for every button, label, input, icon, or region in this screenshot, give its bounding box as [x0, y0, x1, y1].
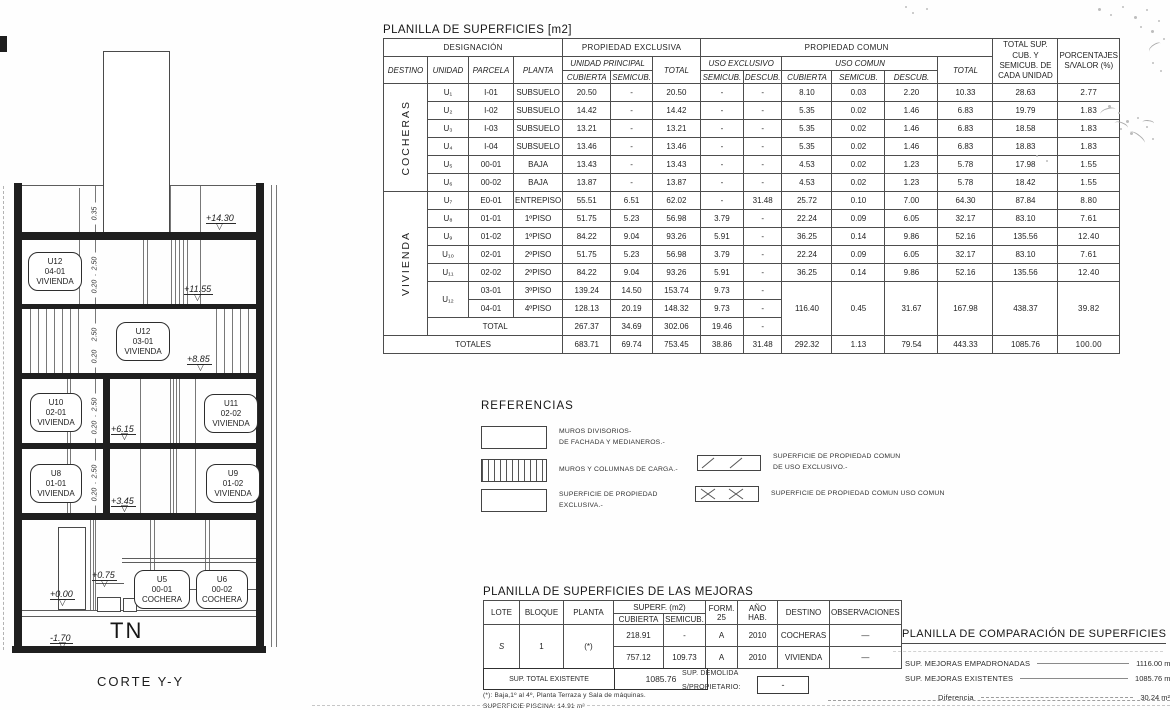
table-row: U₂I-02SUBSUELO14.42-14.42--5.350.021.466… [384, 102, 1120, 120]
scan-speck [1152, 138, 1154, 140]
drawing-line [195, 379, 196, 443]
table-row: U₃I-03SUBSUELO13.21-13.21--5.350.021.466… [384, 120, 1120, 138]
unit-label-line: COCHERA [142, 595, 182, 605]
value-cell: 12.40 [1058, 264, 1120, 282]
header-subcolumn: SEMICUB. [611, 71, 653, 84]
value-cell: 10.33 [938, 84, 993, 102]
legend-item: SUPERFICIE DE PROPIEDAD COMUNDE USO EXCL… [697, 452, 900, 473]
header-subcolumn: SEMICUB. [700, 71, 743, 84]
legend-label-line: EXCLUSIVA.- [559, 501, 658, 512]
unit-label-line: 01-01 [46, 479, 66, 489]
total-value-cell: 267.37 [563, 318, 611, 336]
unit-label-box: U1204-01VIVIENDA [28, 252, 82, 291]
observaciones-cell: — [830, 647, 902, 669]
comparacion-title: PLANILLA DE COMPARACIÓN DE SUPERFICIES [902, 628, 1166, 644]
header-lote: LOTE [484, 601, 520, 625]
value-cell: 32.17 [938, 246, 993, 264]
drawing-line [176, 379, 177, 443]
header-parcela: PARCELA [469, 57, 514, 84]
value-cell: U₈ [428, 210, 469, 228]
value-cell: 83.10 [993, 246, 1058, 264]
scan-speck [1036, 155, 1038, 157]
totales-value-cell: 69.74 [611, 336, 653, 354]
value-cell: U₃ [428, 120, 469, 138]
value-cell: 4ºPISO [514, 300, 563, 318]
value-cell: 0.02 [832, 156, 885, 174]
lote-cell: S [484, 625, 520, 669]
value-cell: 52.16 [938, 264, 993, 282]
value-cell: 20.19 [611, 300, 653, 318]
scan-speck [1140, 26, 1142, 28]
unit-label-box: U600-02COCHERA [196, 570, 248, 609]
drawing-outline [97, 597, 121, 612]
value-cell: 51.75 [563, 246, 611, 264]
header-total: TOTAL [652, 57, 700, 84]
unit-label-line: COCHERA [202, 595, 242, 605]
scan-speck [1160, 70, 1162, 72]
drawing-line [46, 309, 47, 373]
scan-dashed-line [893, 651, 1163, 652]
drawing-line [205, 520, 206, 573]
value-cell: 5.23 [611, 210, 653, 228]
legend-item: SUPERFICIE DE PROPIEDADEXCLUSIVA.- [481, 489, 658, 512]
referencias-title: REFERENCIAS [481, 400, 574, 412]
semicub-cell: 109.73 [664, 647, 706, 669]
header-porcentajes: PORCENTAJES S/VALOR (%) [1058, 39, 1120, 84]
value-cell: U₇ [428, 192, 469, 210]
value-cell: I-03 [469, 120, 514, 138]
value-cell: 87.84 [993, 192, 1058, 210]
value-cell: 22.24 [782, 246, 832, 264]
leader-line [1037, 663, 1129, 664]
value-cell: 1.83 [1058, 120, 1120, 138]
legend-label-line: MUROS Y COLUMNAS DE CARGA.- [559, 465, 678, 476]
drawing-line [240, 309, 241, 373]
legend-label: MUROS DIVISORIOS-DE FACHADA Y MEDIANEROS… [559, 427, 665, 448]
value-cell: - [743, 264, 782, 282]
unit-label-line: U12 [48, 257, 63, 267]
dimension-label: 0.20 [92, 276, 99, 298]
totales-value-cell: 38.86 [700, 336, 743, 354]
value-cell: - [743, 174, 782, 192]
value-cell: 17.98 [993, 156, 1058, 174]
value-cell: E0-01 [469, 192, 514, 210]
drawing-line [78, 309, 79, 373]
drawing-line [140, 449, 141, 513]
header-cubierta: CUBIERTA [614, 614, 664, 625]
drawing-line [16, 610, 264, 611]
level-marker-icon: ▽ [59, 598, 66, 607]
header-bloque: BLOQUE [520, 601, 564, 625]
value-cell: 22.24 [782, 210, 832, 228]
drawing-line [93, 520, 94, 610]
header-total-sup: TOTAL SUP. CUB. Y SEMICUB. DE CADA UNIDA… [993, 39, 1058, 84]
unit-label-line: U8 [51, 469, 61, 479]
value-cell: - [743, 120, 782, 138]
value-cell: 0.02 [832, 174, 885, 192]
terrain-label: TN [110, 618, 143, 644]
value-cell: 1ºPISO [514, 210, 563, 228]
value-cell: 6.83 [938, 102, 993, 120]
value-cell: SUBSUELO [514, 84, 563, 102]
value-cell: - [700, 174, 743, 192]
value-cell: 36.25 [782, 264, 832, 282]
scan-speck [1046, 160, 1048, 162]
value-cell: 1.83 [1058, 138, 1120, 156]
header-planta: PLANTA [564, 601, 614, 625]
value-cell: 25.72 [782, 192, 832, 210]
merged-value-cell: 31.67 [885, 282, 938, 336]
table-row: U₈01-011ºPISO51.755.2356.983.79-22.240.0… [384, 210, 1120, 228]
observaciones-cell: — [830, 625, 902, 647]
header-semicub: SEMICUB. [664, 614, 706, 625]
value-cell: 56.98 [652, 246, 700, 264]
total-value-cell: 302.06 [652, 318, 700, 336]
value-cell: 00-02 [469, 174, 514, 192]
totales-value-cell: 1085.76 [993, 336, 1058, 354]
ano-cell: 2010 [738, 647, 778, 669]
merged-value-cell: 39.82 [1058, 282, 1120, 336]
value-cell: 0.14 [832, 264, 885, 282]
value-cell: U₆ [428, 174, 469, 192]
value-cell: 5.35 [782, 138, 832, 156]
value-cell: 13.21 [652, 120, 700, 138]
level-marker-icon: ▽ [59, 641, 66, 650]
value-cell: 6.05 [885, 210, 938, 228]
unit-label-line: VIVIENDA [37, 418, 74, 428]
value-cell: U₁₁ [428, 264, 469, 282]
value-cell: 62.02 [652, 192, 700, 210]
scan-speck [1137, 117, 1139, 119]
level-marker-icon: ▽ [216, 222, 223, 231]
value-cell: SUBSUELO [514, 138, 563, 156]
value-cell: - [700, 102, 743, 120]
header-form25: FORM. 25 [706, 601, 738, 625]
value-cell: 28.63 [993, 84, 1058, 102]
scan-speck [1146, 9, 1148, 11]
dimension-label: 0.20 [92, 484, 99, 506]
dimension-label: 2.50 [92, 461, 99, 483]
propietario-value-box: - [757, 676, 809, 694]
totales-value-cell: 443.33 [938, 336, 993, 354]
dimension-label: 2.50 [92, 394, 99, 416]
value-cell: 83.10 [993, 210, 1058, 228]
value-cell: 13.43 [563, 156, 611, 174]
value-cell: 9.04 [611, 228, 653, 246]
value-cell: 3ºPISO [514, 282, 563, 300]
value-cell: 135.56 [993, 264, 1058, 282]
propietario-label: S/PROPIETARIO: [682, 684, 741, 691]
header-observaciones: OBSERVACIONES [830, 601, 902, 625]
drawing-line [62, 309, 63, 373]
mejoras-footer: SUP. TOTAL EXISTENTE1085.76 [483, 668, 708, 690]
drawing-line [248, 309, 249, 373]
drawing-line [216, 309, 217, 373]
value-cell: 04-01 [469, 300, 514, 318]
scan-speck [1134, 16, 1137, 19]
drawing-line [276, 185, 277, 647]
value-cell: - [743, 102, 782, 120]
value-cell: U₁₀ [428, 246, 469, 264]
value-cell: 0.02 [832, 120, 885, 138]
table-row: U₁₁02-022ºPISO84.229.0493.265.91-36.250.… [384, 264, 1120, 282]
value-cell: 64.30 [938, 192, 993, 210]
header-planta: PLANTA [514, 57, 563, 84]
drawing-outline [103, 51, 170, 234]
unit-label-line: U11 [224, 399, 238, 409]
header-uso-exclusivo: USO EXCLUSIVO [700, 57, 782, 71]
scan-speck [1110, 14, 1112, 16]
dimension-label: 0.35 [92, 203, 99, 225]
scan-speck [912, 12, 914, 14]
drawing-line [173, 379, 174, 443]
value-cell: I-01 [469, 84, 514, 102]
value-cell: 20.50 [652, 84, 700, 102]
drawing-line [195, 449, 196, 513]
value-cell: 0.02 [832, 102, 885, 120]
value-cell: 18.58 [993, 120, 1058, 138]
value-cell: 128.13 [563, 300, 611, 318]
value-cell: 84.22 [563, 228, 611, 246]
total-value-cell: - [743, 318, 782, 336]
table-row: U₁₂03-013ºPISO139.2414.50153.749.73-116.… [384, 282, 1120, 300]
totales-value-cell: 79.54 [885, 336, 938, 354]
scan-speck [1126, 120, 1129, 123]
header-unidad-principal: UNIDAD PRINCIPAL [563, 57, 653, 71]
drawing-line [54, 309, 55, 373]
drawing-line [209, 520, 210, 573]
plain-swatch [481, 489, 547, 512]
semicub-cell: - [664, 625, 706, 647]
value-cell: 13.46 [563, 138, 611, 156]
wall-slab [103, 379, 110, 513]
header-subcolumn: CUBIERTA [563, 71, 611, 84]
destino-vertical-label: VIVIENDA [400, 231, 412, 296]
destino-cell: COCHERAS [384, 84, 428, 192]
unit-label-line: VIVIENDA [36, 277, 73, 287]
value-cell: 13.43 [652, 156, 700, 174]
unit-label-line: 00-01 [152, 585, 172, 595]
mejoras-body: S1(*)218.91-A2010COCHERAS—757.12109.73A2… [484, 625, 902, 669]
value-cell: 00-01 [469, 156, 514, 174]
dimension-label: 0.20 [92, 346, 99, 368]
value-cell: 03-01 [469, 282, 514, 300]
header-propiedad-comun: PROPIEDAD COMUN [700, 39, 993, 57]
table-row: TOTALES683.7169.74753.4538.8631.48292.32… [384, 336, 1120, 354]
value-cell: 02-02 [469, 264, 514, 282]
drawing-line [122, 562, 258, 563]
leader-line [981, 697, 1134, 698]
wall-slab [14, 232, 264, 240]
value-cell: SUBSUELO [514, 120, 563, 138]
value-cell: - [700, 84, 743, 102]
value-cell: - [611, 138, 653, 156]
unit-label-line: U6 [217, 575, 227, 585]
value-cell: - [700, 120, 743, 138]
header-row: DESIGNACIÓNPROPIEDAD EXCLUSIVAPROPIEDAD … [384, 39, 1120, 57]
drawing-line [90, 520, 91, 610]
value-cell: - [743, 84, 782, 102]
drawing-line [271, 185, 272, 647]
value-cell: 13.87 [652, 174, 700, 192]
value-cell: 3.79 [700, 210, 743, 228]
section-drawing-corte: TN CORTE Y-Y +14.30▽+11.55▽+8.85▽+6.15▽+… [0, 0, 382, 710]
value-cell: 139.24 [563, 282, 611, 300]
value-cell: - [743, 156, 782, 174]
value-cell: U₂ [428, 102, 469, 120]
value-cell: 5.91 [700, 228, 743, 246]
totales-value-cell: 683.71 [563, 336, 611, 354]
unit-label-line: VIVIENDA [124, 347, 161, 357]
value-cell: - [743, 300, 782, 318]
unit-label-line: VIVIENDA [212, 419, 249, 429]
value-cell: 6.83 [938, 138, 993, 156]
wall-slab [14, 304, 264, 309]
comparacion-row: SUP. MEJORAS EXISTENTES1085.76 m² [905, 674, 1170, 683]
value-cell: 01-02 [469, 228, 514, 246]
drawing-line [224, 309, 225, 373]
drawing-line [170, 449, 171, 513]
propietario-value: - [782, 680, 785, 690]
drawing-caption: CORTE Y-Y [97, 674, 184, 689]
value-cell: 32.17 [938, 210, 993, 228]
table-row: U₅00-01BAJA13.43-13.43--4.530.021.235.78… [384, 156, 1120, 174]
value-cell: I-04 [469, 138, 514, 156]
legend-label-line: MUROS DIVISORIOS- [559, 427, 665, 438]
drawing-line [179, 240, 180, 304]
value-cell: BAJA [514, 156, 563, 174]
wall-slab [14, 513, 264, 520]
value-cell: 135.56 [993, 228, 1058, 246]
cubierta-cell: 757.12 [614, 647, 664, 669]
level-marker-icon: ▽ [197, 363, 204, 372]
value-cell: 1ºPISO [514, 228, 563, 246]
dimension-label: 2.50 [92, 253, 99, 275]
value-cell: 12.40 [1058, 228, 1120, 246]
scan-squiggle [1142, 119, 1155, 127]
legend-item: MUROS DIVISORIOS-DE FACHADA Y MEDIANEROS… [481, 426, 665, 449]
value-cell: 0.03 [832, 84, 885, 102]
legend-item: MUROS Y COLUMNAS DE CARGA.- [481, 459, 678, 482]
value-cell: 9.86 [885, 264, 938, 282]
value-cell: 93.26 [652, 228, 700, 246]
drawing-line [143, 240, 144, 304]
drawing-line [30, 309, 31, 373]
value-cell: 55.51 [563, 192, 611, 210]
wall-slab [14, 373, 264, 379]
unit-label-box: U500-01COCHERA [134, 570, 190, 609]
wall-slab [0, 36, 7, 52]
value-cell: 13.46 [652, 138, 700, 156]
merged-value-cell: 116.40 [782, 282, 832, 336]
scan-speck [1163, 38, 1165, 40]
scan-speck [1118, 112, 1120, 114]
header-unidad: UNIDAD [428, 57, 469, 84]
legend-label-line: SUPERFICIE DE PROPIEDAD COMUN [773, 452, 900, 463]
scan-speck [926, 8, 928, 10]
legend-label-line: SUPERFICIE DE PROPIEDAD COMUN USO COMUN [771, 489, 945, 500]
value-cell: 1.55 [1058, 174, 1120, 192]
table-row: COCHERASU₁I-01SUBSUELO20.50-20.50--8.100… [384, 84, 1120, 102]
merged-value-cell: 0.45 [832, 282, 885, 336]
unit-label-line: VIVIENDA [37, 489, 74, 499]
value-cell: 1.46 [885, 102, 938, 120]
value-cell: 7.00 [885, 192, 938, 210]
value-cell: U₅ [428, 156, 469, 174]
planta-cell: (*) [564, 625, 614, 669]
value-cell: 9.86 [885, 228, 938, 246]
legend-item: SUPERFICIE DE PROPIEDAD COMUN USO COMUN [695, 486, 945, 502]
header-total: TOTAL [938, 57, 993, 84]
header-propiedad-exclusiva: PROPIEDAD EXCLUSIVA [563, 39, 701, 57]
legend-label-line: DE FACHADA Y MEDIANEROS.- [559, 438, 665, 449]
dimension-label: 2.50 [92, 324, 99, 346]
value-cell: 18.42 [993, 174, 1058, 192]
wall-slab [14, 443, 264, 449]
legend-label-line: SUPERFICIE DE PROPIEDAD [559, 490, 658, 501]
value-cell: 02-01 [469, 246, 514, 264]
value-cell: - [700, 156, 743, 174]
value-cell: 36.25 [782, 228, 832, 246]
value-cell: 6.83 [938, 120, 993, 138]
value-cell: - [743, 282, 782, 300]
header-row: LOTEBLOQUEPLANTASUPERF. (m2)FORM. 25AÑO … [484, 601, 902, 614]
value-cell: 7.61 [1058, 210, 1120, 228]
scan-speck [1146, 126, 1148, 128]
unit-label-line: 04-01 [45, 267, 65, 277]
total-value-cell: 19.46 [700, 318, 743, 336]
drawing-line [175, 240, 176, 304]
value-cell: - [611, 102, 653, 120]
total-value-cell: 34.69 [611, 318, 653, 336]
table-row: U₉01-021ºPISO84.229.0493.265.91-36.250.1… [384, 228, 1120, 246]
main-table-body: COCHERASU₁I-01SUBSUELO20.50-20.50--8.100… [384, 84, 1120, 354]
header-ano-hab: AÑO HAB. [738, 601, 778, 625]
plain-swatch [481, 426, 547, 449]
drawing-line [173, 449, 174, 513]
value-cell: 13.21 [563, 120, 611, 138]
unit-label-box: U1102-02VIVIENDA [204, 394, 258, 433]
value-cell: BAJA [514, 174, 563, 192]
legend-label-line: DE USO EXCLUSIVO.- [773, 463, 900, 474]
value-cell: U₄ [428, 138, 469, 156]
value-cell: 9.73 [700, 282, 743, 300]
mejoras-title: PLANILLA DE SUPERFICIES DE LAS MEJORAS [483, 586, 753, 598]
value-cell: 1.46 [885, 120, 938, 138]
mejoras-total-label-cell: SUP. TOTAL EXISTENTE [483, 668, 615, 690]
comparacion-value: 1085.76 m² [1135, 674, 1170, 683]
unit-label-line: 03-01 [133, 337, 153, 347]
unit-label-line: 01-02 [223, 479, 243, 489]
table-row: U₄I-04SUBSUELO13.46-13.46--5.350.021.466… [384, 138, 1120, 156]
header-superf: SUPERF. (m2) [614, 601, 706, 614]
unit-label-line: U9 [228, 469, 238, 479]
value-cell: 4.53 [782, 156, 832, 174]
header-uso-comun: USO COMUN [782, 57, 938, 71]
comparacion-label: SUP. MEJORAS EMPADRONADAS [905, 659, 1030, 668]
header-subcolumn: CUBIERTA [782, 71, 832, 84]
destino-cell: VIVIENDA [778, 647, 830, 669]
comparacion-row: SUP. MEJORAS EMPADRONADAS1116.00 m² [905, 659, 1170, 668]
header-subcolumn: SEMICUB. [832, 71, 885, 84]
drawing-line [154, 520, 155, 573]
totales-value-cell: 753.45 [652, 336, 700, 354]
value-cell: 14.50 [611, 282, 653, 300]
totales-value-cell: 100.00 [1058, 336, 1120, 354]
value-cell: 20.50 [563, 84, 611, 102]
scan-speck [905, 6, 907, 8]
drawing-line [150, 520, 151, 573]
